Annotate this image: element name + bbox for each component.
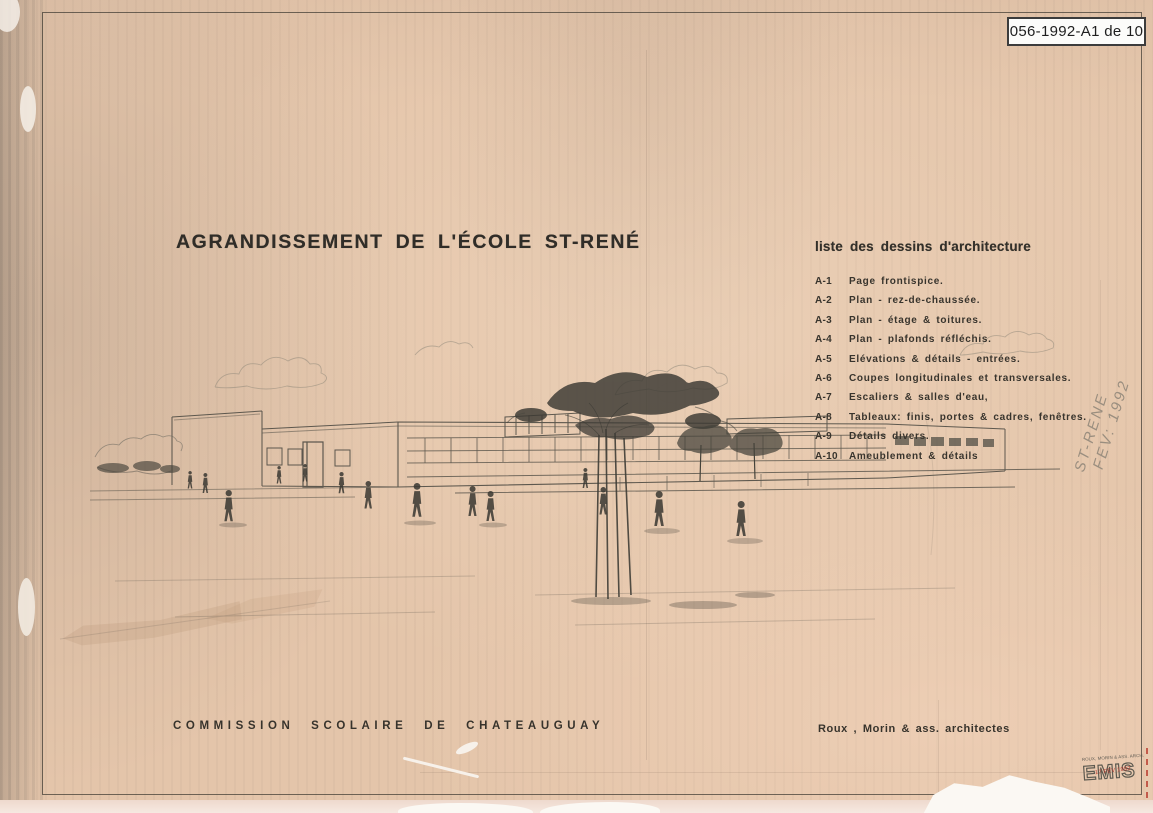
emis-stamp: ROUX, MORIN & ASS. ARCH. EMIS 17 FEV 199… (1082, 753, 1145, 797)
sheet-number-text: 056-1992-A1 de 10 (1010, 23, 1144, 40)
red-registry-mark (1146, 748, 1150, 798)
paper-nick (18, 578, 35, 636)
sheet-number-label: 056-1992-A1 de 10 (1007, 17, 1146, 46)
scanned-drawing-sheet: AGRANDISSEMENT DE L'ÉCOLE ST-RENÉ liste … (0, 0, 1153, 813)
sheet-border (42, 12, 1142, 795)
paper-nick (20, 86, 36, 132)
